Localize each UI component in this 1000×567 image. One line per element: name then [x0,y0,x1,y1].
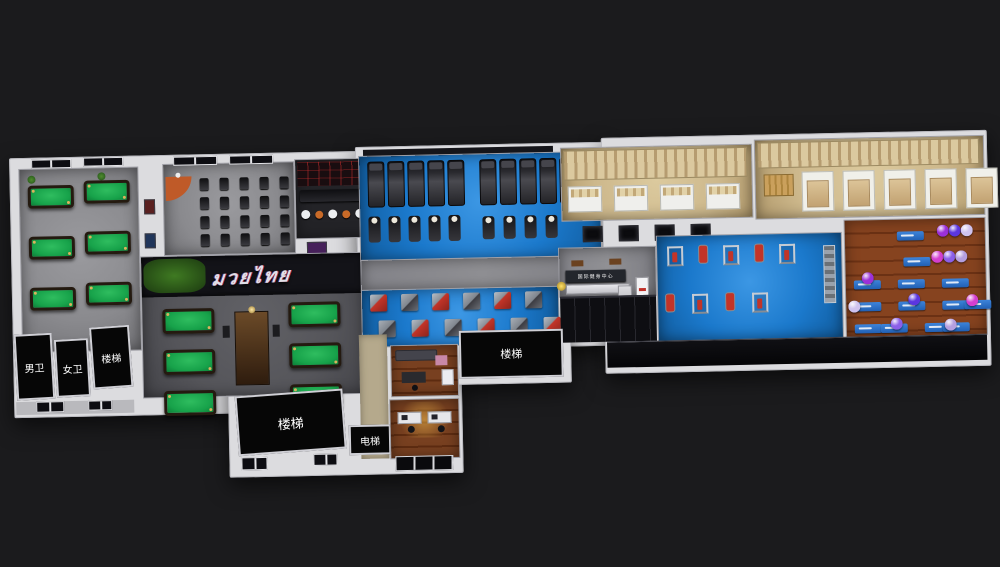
building-plan: มวยไทย 男卫 女卫 楼梯 [0,0,1000,567]
spin-bike [260,233,269,245]
pool-table-column [84,180,133,306]
locker-row [757,138,979,169]
pool-table [86,282,132,306]
pool-table [30,287,76,311]
pool-table [163,349,216,375]
spin-bike [200,234,209,246]
squat-rack [752,292,768,312]
mural-text: มวยไทย [210,260,292,295]
treadmill [539,158,557,204]
pool-table [162,308,215,334]
strength-machine [432,293,449,310]
treadmill-row [367,157,577,207]
womens-restroom-label: 女卫 [62,360,83,376]
window [241,457,267,471]
treadmill [479,159,497,205]
mens-restroom: 男卫 [14,333,56,401]
walkway [16,400,134,415]
pool-table [289,342,342,368]
plant [97,172,105,180]
office-workstations [390,399,459,458]
strength-machine [370,294,387,311]
cooler-stripe [639,288,646,291]
stairs-left-label: 楼梯 [101,349,122,365]
office-lounge [391,345,458,396]
treadmill [427,160,445,206]
locker-bays [568,183,741,213]
sign-board [609,258,621,264]
treadmill [499,159,517,205]
treadmill [447,160,465,206]
strength-machine [525,291,542,308]
bar-table [301,210,310,219]
muaythai-billiards-hall: มวยไทย [141,253,366,398]
stairs-right-label: 楼梯 [500,346,522,362]
elliptical-machine [368,216,381,242]
exercise-bike [482,216,494,239]
free-weight-row [666,292,768,314]
stairs-room-center: 楼梯 [235,389,347,457]
spin-bike [219,196,228,208]
squat-rack [779,244,795,264]
locker-room-left [561,145,752,221]
spin-bike [279,176,288,188]
chandelier [248,306,255,313]
wall-picture [145,233,156,248]
pool-table [288,301,341,327]
exercise-ball [961,224,973,236]
bar-counter [300,189,368,202]
workstation [427,411,451,423]
exercise-ball [955,250,967,262]
window [83,157,123,167]
squat-rack [667,246,683,266]
spin-bike [239,177,248,189]
pool-table [28,185,74,209]
entrance-lobby-glass [560,295,657,343]
pool-table [85,231,131,255]
spin-bike [259,177,268,189]
exercise-ball [949,224,961,236]
side-stool [223,326,230,338]
weight-bench [666,294,674,311]
elliptical-machine [388,216,401,242]
side-stool [273,325,280,337]
locker-row [563,147,748,181]
treadmill [387,161,405,207]
pool-table [29,236,75,260]
weight-bench [699,246,707,263]
spin-bike [260,214,269,226]
weight-bench [726,293,734,310]
exercise-ball [943,250,955,262]
wood-counter [234,311,270,386]
yoga-mat [898,279,925,289]
elliptical-machine [448,215,461,241]
yoga-mat [903,257,930,267]
spin-bike [240,233,249,245]
dumbbell-rack [823,245,836,303]
treadmill [367,161,385,207]
elliptical-machine [428,215,441,241]
window [173,156,217,166]
strength-machine [412,320,429,337]
sign-board [571,260,583,266]
locker-bay [660,184,695,211]
squat-rack [723,245,739,265]
locker-bay [568,186,603,213]
sofa [395,349,437,361]
window [88,400,112,411]
machine-row [370,291,542,312]
bar-table [328,209,337,218]
mens-restroom-label: 男卫 [24,359,45,375]
shower-stall [924,168,957,209]
spin-bike [220,234,229,246]
yoga-mat [897,231,924,241]
spin-bike [279,195,288,207]
exercise-bike [545,215,557,238]
locker-bay [614,185,649,212]
floor-plan-scene: มวยไทย 男卫 女卫 楼梯 [0,0,1000,567]
office-desk [402,372,426,384]
window [36,401,64,413]
exercise-ball [931,251,943,263]
exercise-bike-row [482,215,557,240]
stairs-room-right: 楼梯 [459,329,564,379]
elliptical-row [368,215,461,243]
pool-table [84,180,130,204]
elevator-label: 电梯 [360,432,380,447]
spin-bike [240,215,249,227]
wall-poster [583,226,603,242]
free-weights-zone [657,233,843,341]
strength-machine [401,294,418,311]
strength-machine [494,292,511,309]
office-chair [412,385,418,391]
window [313,453,337,466]
weight-bench [755,244,763,261]
exercise-bike [503,216,515,239]
stairs-center-label: 楼梯 [277,412,304,433]
spin-bike [259,196,268,208]
spin-bike [220,215,229,227]
treadmill [407,161,425,207]
sauna-bench [764,174,794,197]
exercise-bike [524,215,536,238]
strength-machine [463,292,480,309]
workstation [397,412,421,424]
shower-stall [965,168,998,209]
spin-bike [219,178,228,190]
shower-stall [883,169,916,210]
yoga-mat [855,324,882,334]
spin-bike [199,178,208,190]
window [31,159,71,169]
spin-bike [280,233,289,245]
spin-bike [280,214,289,226]
wall-poster [619,225,639,241]
spin-bike [200,216,209,228]
locker-room-right [755,136,985,219]
stairs-room-left: 楼梯 [89,325,133,390]
plant [27,176,35,184]
yoga-mat [942,278,969,288]
muaythai-mural: มวยไทย [141,253,364,298]
womens-restroom: 女卫 [54,338,91,398]
shower-stalls [801,168,998,212]
exercise-ball [937,225,949,237]
elliptical-machine [408,216,421,242]
squat-rack [692,294,708,314]
spin-bike-studio [163,162,295,255]
cabinet [442,369,454,385]
wall-picture [144,199,155,214]
locker-bay [706,183,741,210]
mannequin [175,173,180,178]
bar-stool [315,210,323,218]
reception-sign-text: 国际健身中心 [578,272,614,280]
display-window [395,455,453,471]
reception-sign: 国际健身中心 [566,269,626,282]
spin-bike [199,197,208,209]
yoga-studio [845,218,987,337]
free-weight-row [667,244,795,267]
treadmill [519,158,537,204]
spin-bike-grid [197,176,290,248]
window [229,155,273,165]
elevator-room: 电梯 [349,424,392,455]
shower-stall [801,171,834,212]
bar-stool [342,210,350,218]
pool-table [164,390,217,416]
pool-table-column [162,308,216,416]
shower-stall [842,170,875,211]
pool-table-column [28,185,77,311]
spin-bike [239,196,248,208]
mural-graffiti [143,258,206,293]
pink-rug [435,355,447,365]
orange-rug [165,176,191,201]
